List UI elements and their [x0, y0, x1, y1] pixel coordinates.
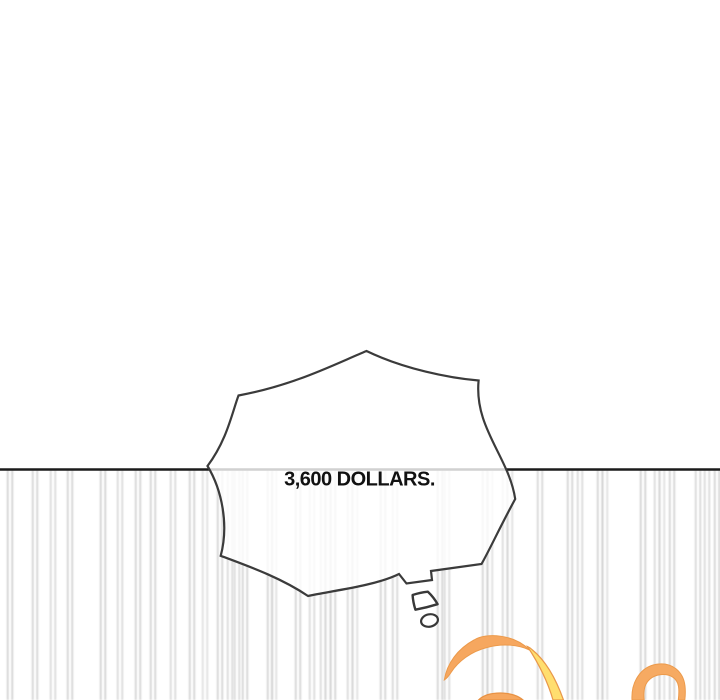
svg-text:3,600 DOLLARS.: 3,600 DOLLARS.	[284, 469, 435, 491]
